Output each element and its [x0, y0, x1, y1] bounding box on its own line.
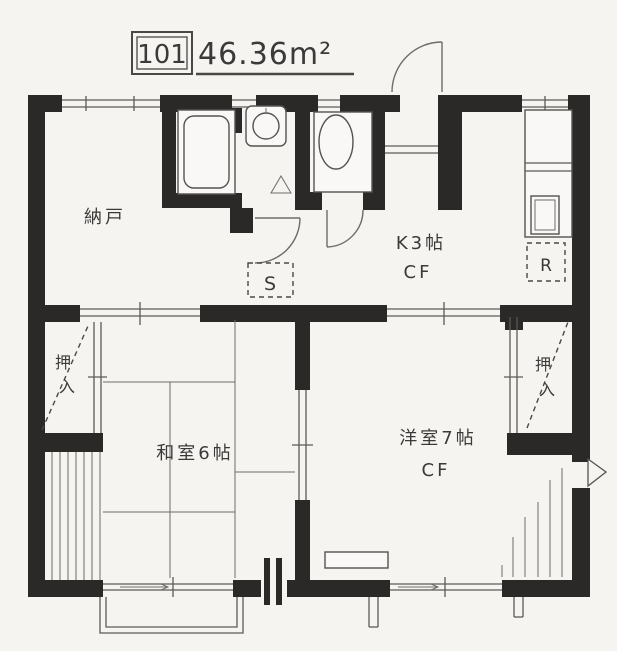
kitchen-floor-label: CF [404, 262, 433, 283]
floor-plan-drawing: 101 46.36m² [0, 0, 617, 651]
closet-right-diagonal [527, 322, 568, 428]
stair-hatch-right [502, 468, 562, 577]
bath-door-mark [271, 176, 291, 193]
washbasin [246, 106, 286, 146]
post-right [514, 597, 523, 617]
balcony [100, 597, 243, 633]
svg-text:押: 押 [535, 355, 551, 374]
storage-room-label: 納戸 [84, 207, 126, 228]
closet-right-label: 押 入 [535, 355, 555, 399]
western-room-cabinet [325, 552, 388, 568]
interior-walls [28, 95, 590, 597]
closet-left-label: 押 入 [55, 353, 75, 396]
kitchen-label: K3帖 [396, 233, 446, 254]
kitchen-counter [525, 110, 572, 237]
fridge-spot: R [527, 243, 565, 281]
svg-text:入: 入 [539, 380, 555, 399]
unit-number-badge: 101 [132, 32, 192, 74]
washer-label: S [264, 273, 276, 295]
western-room-label: 洋室7帖 [399, 428, 476, 449]
wall-break-symbol [264, 558, 282, 605]
unit-number: 101 [137, 40, 187, 70]
washer-spot: S [248, 263, 293, 297]
floor-plan-page: 101 46.36m² [0, 0, 617, 651]
stair-hatch-left [52, 452, 108, 580]
fridge-label: R [540, 256, 552, 276]
western-room-floor-label: CF [422, 460, 451, 481]
svg-text:押: 押 [55, 353, 71, 372]
floor-area: 46.36m² [196, 37, 354, 74]
post-left [369, 597, 378, 627]
side-opening-arrow [588, 459, 606, 486]
bathtub [178, 110, 235, 194]
entrance-door [392, 42, 442, 92]
japanese-room-label: 和室6帖 [156, 443, 233, 464]
toilet-door [327, 210, 363, 247]
svg-text:入: 入 [59, 377, 75, 396]
floor-area-value: 46.36m² [198, 37, 332, 72]
entrance-step [385, 146, 438, 153]
washroom-door [255, 218, 300, 263]
toilet [314, 112, 372, 192]
